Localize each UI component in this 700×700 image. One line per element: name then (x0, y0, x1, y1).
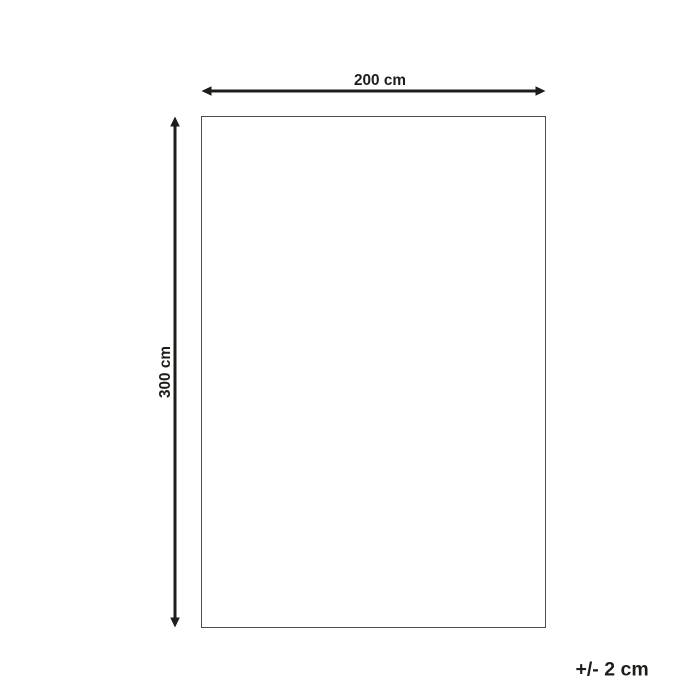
svg-text:200 cm: 200 cm (354, 72, 406, 89)
svg-text:+/- 2 cm: +/- 2 cm (576, 659, 649, 681)
svg-text:300 cm: 300 cm (157, 346, 174, 398)
